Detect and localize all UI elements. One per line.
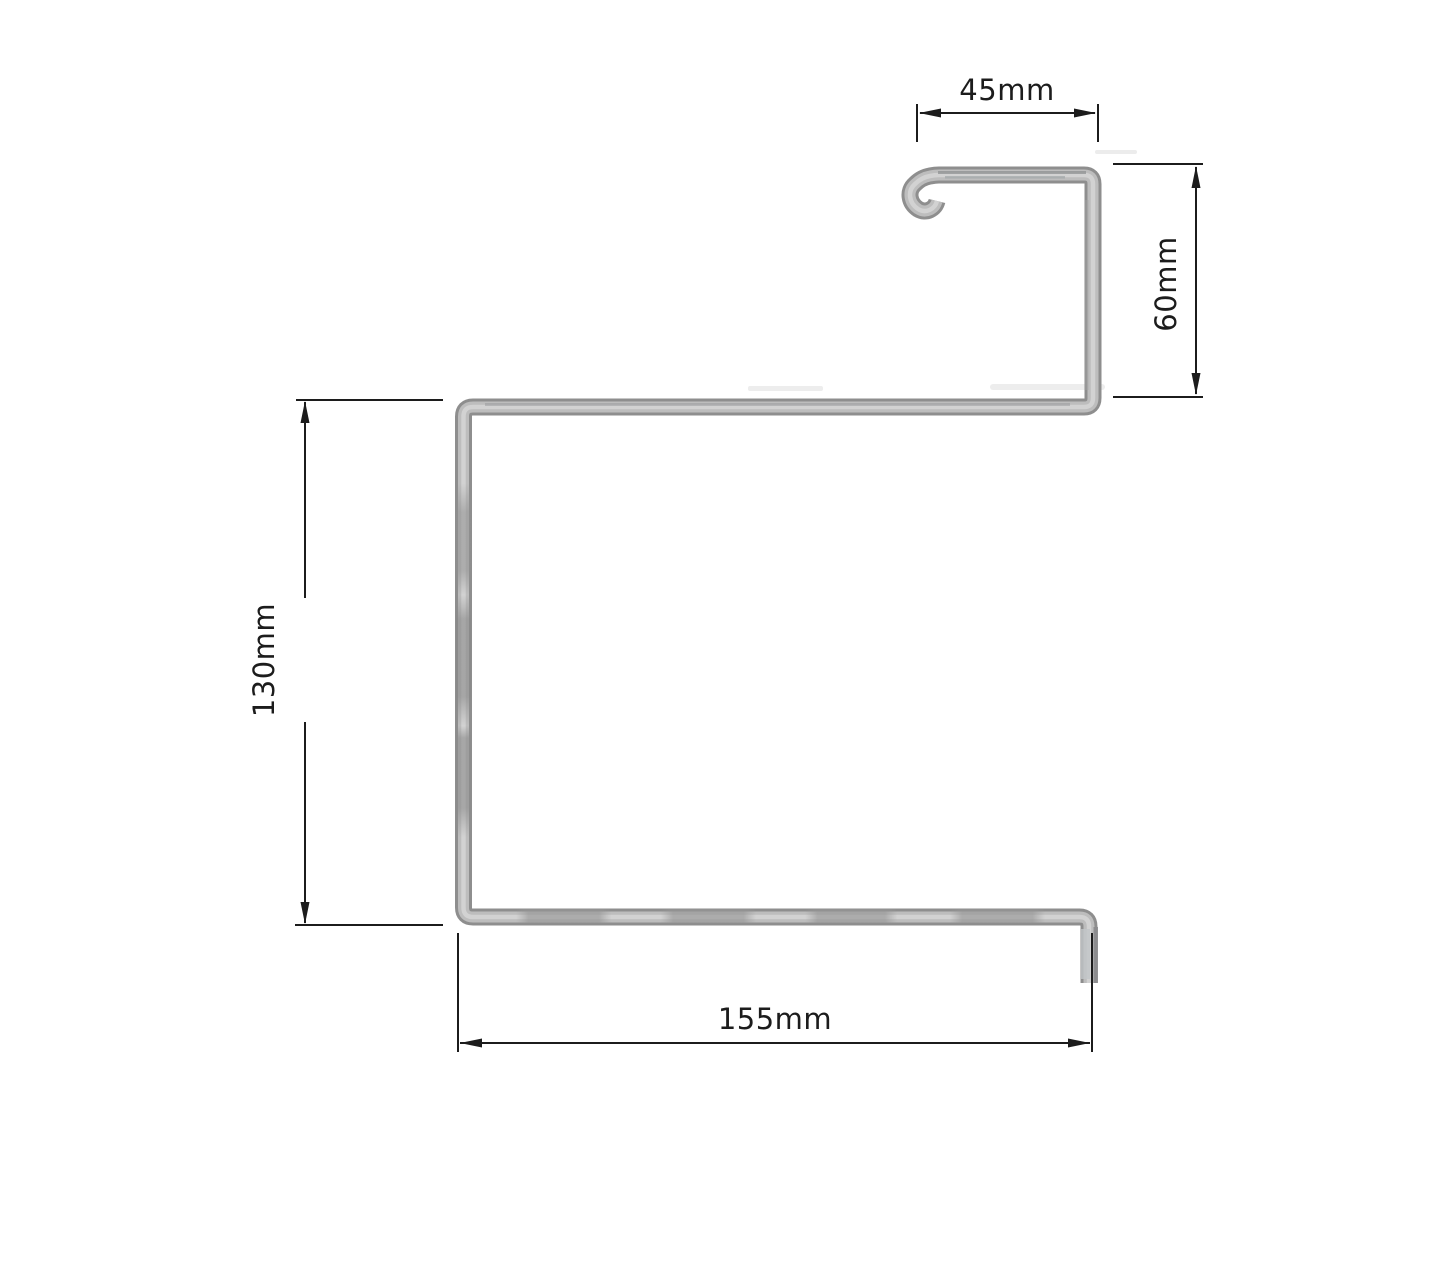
technical-drawing-canvas: 45mm 60mm 130mm 155mm <box>0 0 1445 1271</box>
arrowhead-up <box>1192 166 1201 188</box>
texture-lip-face <box>1081 929 1090 979</box>
dimension-top-width: 45mm <box>917 73 1098 142</box>
texture-right-leg-shade <box>1085 200 1089 390</box>
metal-profile <box>456 171 1098 983</box>
arrowhead-down <box>301 902 310 924</box>
dimension-left-height: 130mm <box>247 400 443 925</box>
dimension-label-left-height: 130mm <box>247 603 281 717</box>
texture-top-flange-streak <box>945 176 1065 179</box>
texture-lip-edge <box>1094 927 1099 983</box>
texture-left-face-bands <box>456 425 471 910</box>
dimension-label-bottom-width: 155mm <box>718 1002 832 1036</box>
dimension-label-right-height: 60mm <box>1149 236 1183 331</box>
profile-sheet-edge <box>464 175 1094 983</box>
ghost-smudge <box>748 386 823 391</box>
texture-top-flange-streak <box>938 171 1086 174</box>
profile-sheet-highlight <box>464 175 1094 983</box>
ghost-smudge <box>1095 150 1137 154</box>
arrowhead-left <box>919 109 941 118</box>
texture-bottom-flange-bands <box>470 909 1085 923</box>
dimension-label-top-width: 45mm <box>959 73 1054 107</box>
arrowhead-left <box>460 1039 482 1048</box>
arrowhead-up <box>301 401 310 423</box>
drawing-page: 45mm 60mm 130mm 155mm <box>0 0 1445 1271</box>
dimension-right-height: 60mm <box>1113 164 1203 397</box>
arrowhead-right <box>1074 109 1096 118</box>
texture-shelf-streak <box>485 403 1070 406</box>
dimension-bottom-width: 155mm <box>458 933 1092 1052</box>
arrowhead-down <box>1192 373 1201 395</box>
background-artifacts <box>748 150 1137 391</box>
profile-sheet-body <box>464 175 1094 983</box>
arrowhead-right <box>1068 1039 1090 1048</box>
